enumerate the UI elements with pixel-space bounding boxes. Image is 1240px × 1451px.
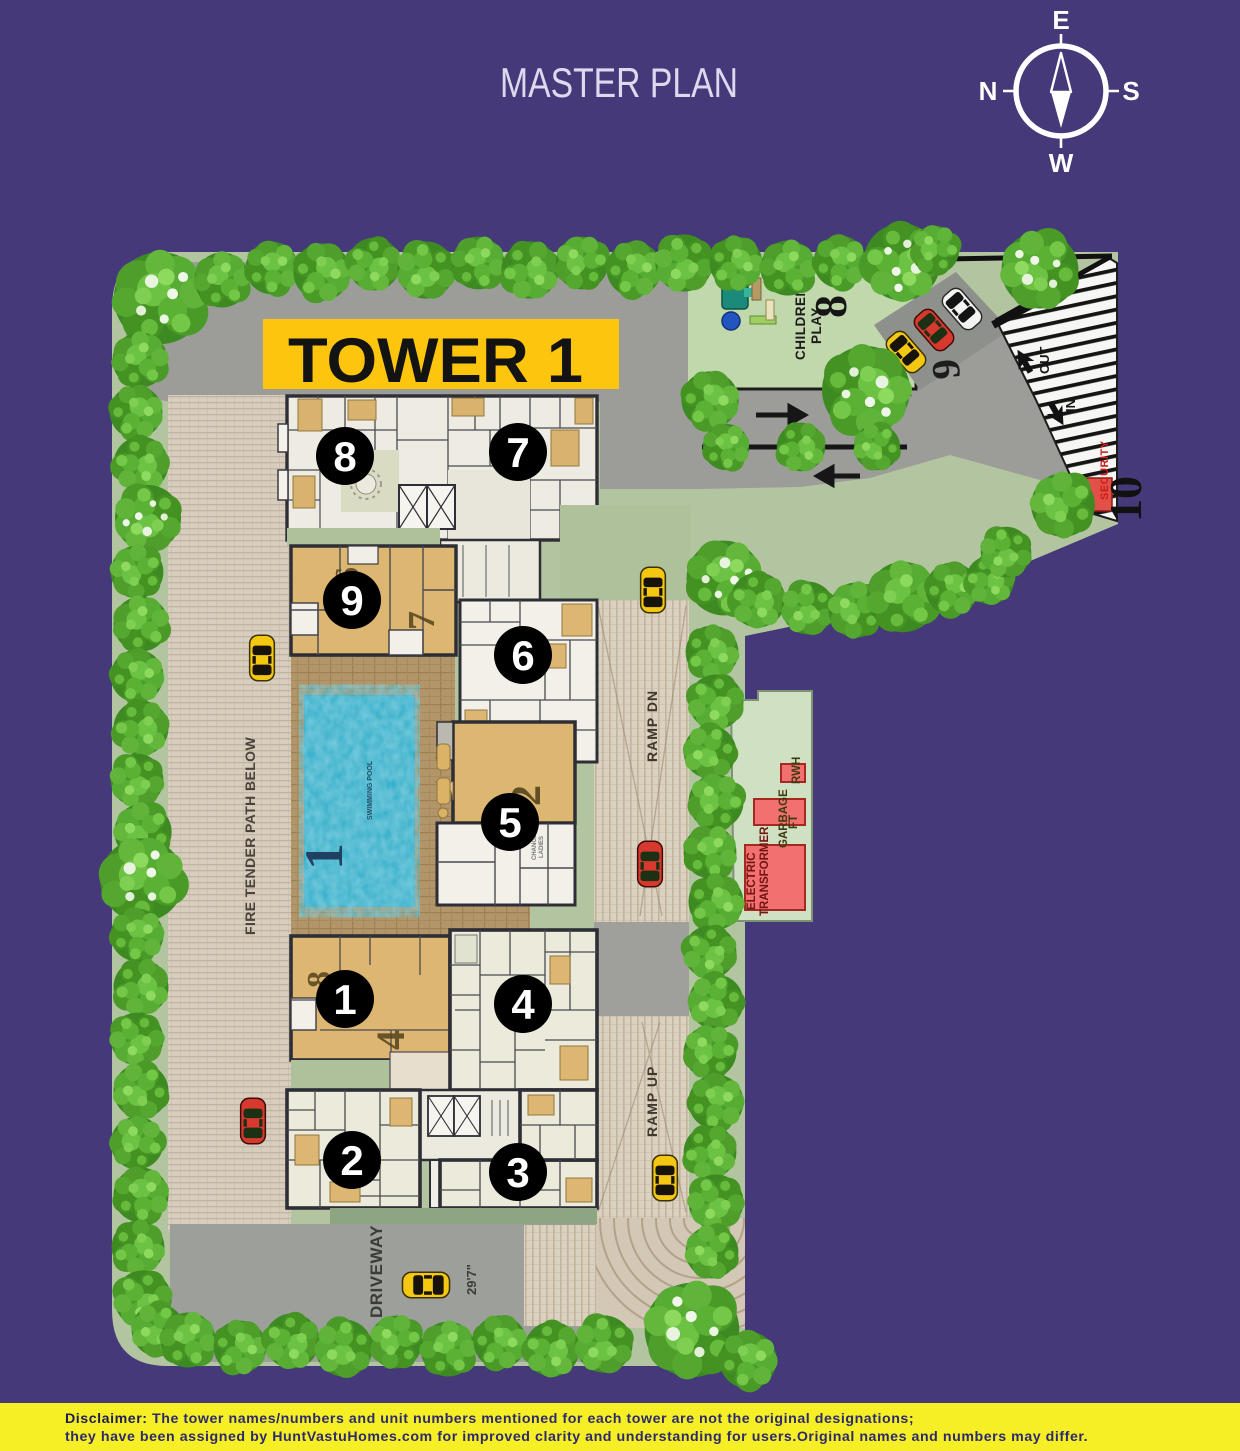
svg-text:DRIVEWAY: DRIVEWAY	[367, 1225, 386, 1318]
svg-text:E: E	[1052, 5, 1069, 35]
svg-text:W: W	[1049, 148, 1074, 178]
svg-text:Disclaimer: The tower names/nu: Disclaimer: The tower names/numbers and …	[65, 1411, 914, 1427]
svg-text:9: 9	[340, 577, 363, 624]
svg-text:10: 10	[1100, 476, 1151, 522]
svg-text:ELECTRIC: ELECTRIC	[746, 853, 758, 911]
svg-text:FT: FT	[788, 815, 800, 829]
svg-text:MASTER PLAN: MASTER PLAN	[500, 59, 738, 106]
svg-text:7: 7	[506, 429, 529, 476]
svg-text:7: 7	[401, 611, 443, 630]
svg-text:1: 1	[294, 843, 354, 870]
svg-text:3: 3	[506, 1149, 529, 1196]
svg-text:2: 2	[340, 1137, 363, 1184]
svg-text:S: S	[1122, 76, 1139, 106]
svg-text:FIRE TENDER PATH BELOW: FIRE TENDER PATH BELOW	[242, 737, 258, 935]
svg-text:6: 6	[511, 632, 534, 679]
svg-text:9: 9	[922, 357, 969, 381]
svg-text:N: N	[979, 76, 998, 106]
svg-text:TRANSFORMER: TRANSFORMER	[759, 826, 771, 916]
svg-text:IN: IN	[1063, 399, 1078, 412]
svg-text:TOWER 1: TOWER 1	[288, 326, 583, 396]
svg-text:1: 1	[333, 976, 356, 1023]
svg-text:4: 4	[511, 981, 535, 1028]
svg-text:8: 8	[805, 295, 856, 318]
svg-text:RAMP UP: RAMP UP	[644, 1066, 660, 1137]
svg-text:RAMP DN: RAMP DN	[644, 690, 660, 762]
svg-text:LADIES: LADIES	[539, 836, 545, 858]
svg-text:8: 8	[333, 433, 356, 480]
svg-text:5: 5	[498, 799, 521, 846]
svg-text:SWIMMING POOL: SWIMMING POOL	[367, 760, 374, 820]
svg-text:RWH: RWH	[791, 757, 803, 784]
svg-text:OUT: OUT	[1037, 347, 1052, 375]
svg-text:29'7": 29'7"	[464, 1264, 479, 1295]
svg-text:they have been assigned by Hun: they have been assigned by HuntVastuHome…	[65, 1429, 1088, 1445]
svg-text:4: 4	[368, 1030, 413, 1050]
